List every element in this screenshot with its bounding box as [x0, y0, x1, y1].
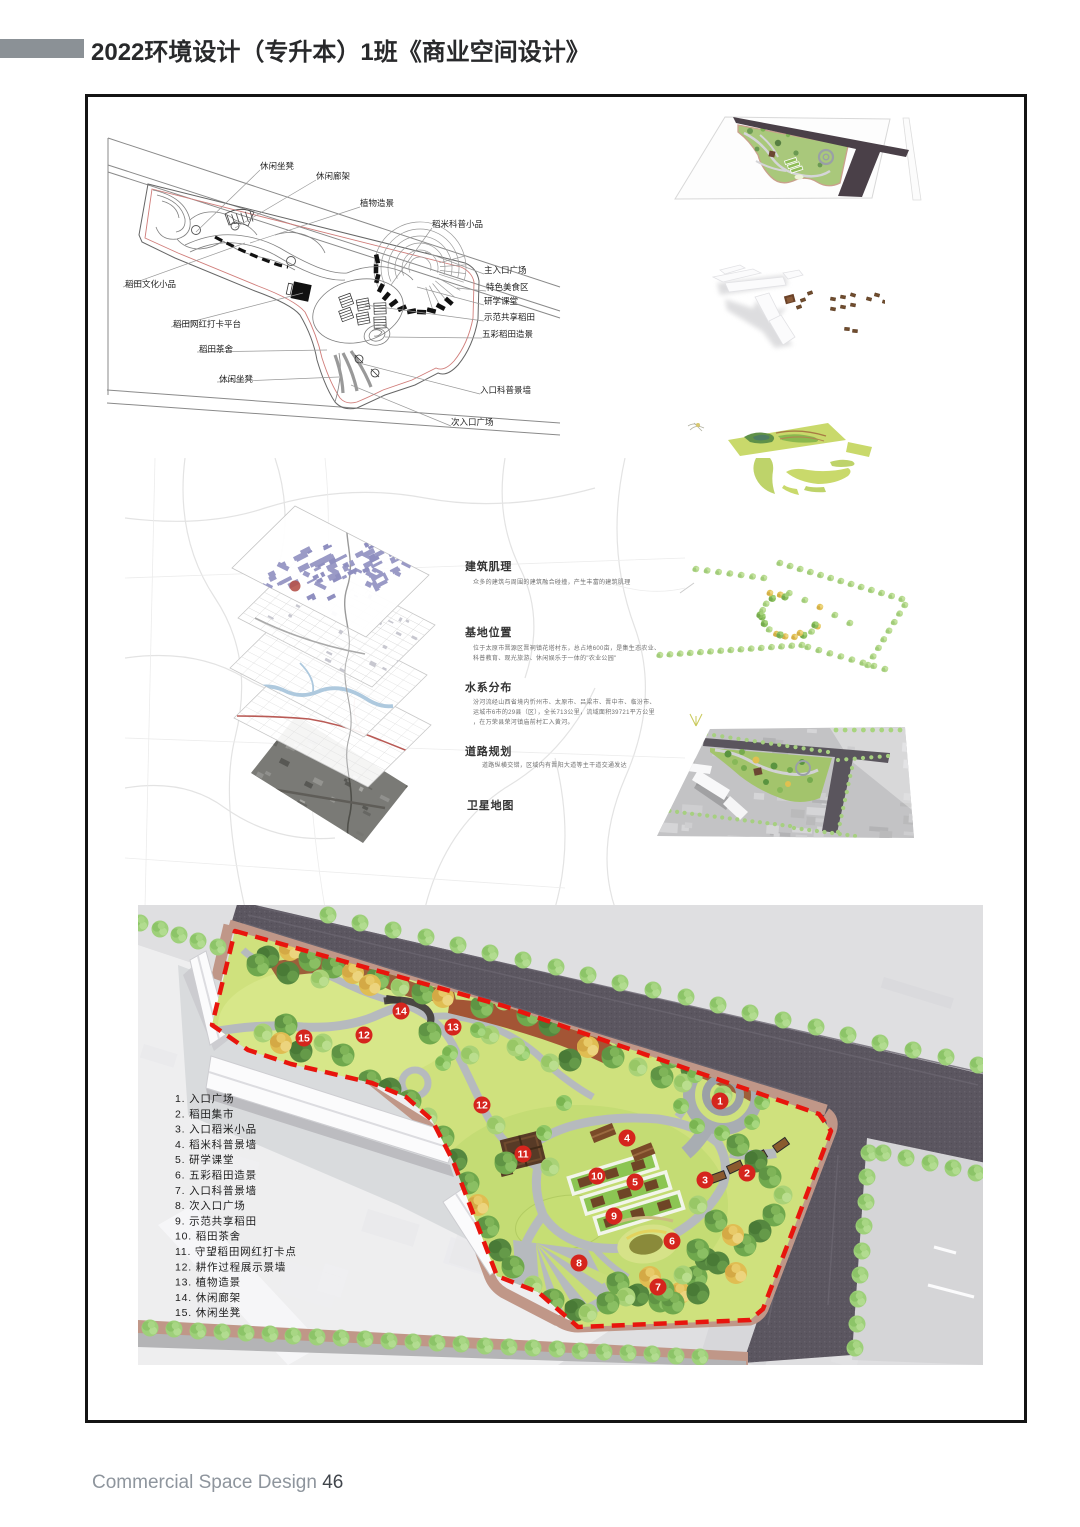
svg-text:7: 7 — [655, 1282, 661, 1294]
svg-text:4: 4 — [624, 1133, 630, 1145]
svg-text:休闲坐凳: 休闲坐凳 — [260, 161, 295, 171]
svg-text:五彩稻田造景: 五彩稻田造景 — [482, 329, 533, 339]
svg-text:11: 11 — [517, 1149, 528, 1161]
svg-text:8: 8 — [576, 1258, 582, 1270]
svg-text:9: 9 — [611, 1211, 617, 1223]
svg-text:3: 3 — [702, 1175, 708, 1187]
svg-text:休闲坐凳: 休闲坐凳 — [219, 374, 254, 384]
svg-text:研学课堂: 研学课堂 — [484, 296, 518, 306]
svg-text:4. 稻米科普景墙: 4. 稻米科普景墙 — [175, 1138, 257, 1151]
svg-text:稻田文化小品: 稻田文化小品 — [125, 279, 176, 289]
svg-text:11. 守望稻田网红打卡点: 11. 守望稻田网红打卡点 — [175, 1245, 297, 1258]
svg-text:2: 2 — [744, 1168, 750, 1180]
svg-text:植物造景: 植物造景 — [360, 198, 394, 208]
svg-text:15. 休闲坐凳: 15. 休闲坐凳 — [175, 1306, 241, 1319]
svg-text:3. 入口稻米小品: 3. 入口稻米小品 — [175, 1123, 257, 1136]
svg-text:稻田网红打卡平台: 稻田网红打卡平台 — [173, 319, 241, 329]
svg-text:示范共享稻田: 示范共享稻田 — [484, 312, 535, 322]
svg-text:休闲廊架: 休闲廊架 — [316, 171, 351, 181]
svg-text:12: 12 — [476, 1100, 488, 1112]
svg-text:主入口广场: 主入口广场 — [484, 265, 527, 275]
svg-text:10: 10 — [591, 1171, 603, 1183]
svg-text:14: 14 — [395, 1006, 407, 1018]
svg-text:5. 研学课堂: 5. 研学课堂 — [175, 1153, 234, 1166]
svg-text:6. 五彩稻田造景: 6. 五彩稻田造景 — [175, 1169, 257, 1182]
svg-text:1. 入口广场: 1. 入口广场 — [175, 1092, 234, 1105]
svg-text:10. 稻田茶舍: 10. 稻田茶舍 — [175, 1230, 241, 1243]
svg-text:6: 6 — [669, 1236, 675, 1248]
svg-text:入口科普景墙: 入口科普景墙 — [480, 385, 532, 395]
svg-text:12. 耕作过程展示景墙: 12. 耕作过程展示景墙 — [175, 1260, 286, 1273]
svg-text:15: 15 — [298, 1033, 310, 1045]
svg-text:稻米科普小品: 稻米科普小品 — [432, 219, 483, 229]
svg-text:2. 稻田集市: 2. 稻田集市 — [175, 1107, 234, 1120]
svg-text:14. 休闲廊架: 14. 休闲廊架 — [175, 1291, 241, 1304]
svg-text:7. 入口科普景墙: 7. 入口科普景墙 — [175, 1184, 257, 1197]
svg-text:9. 示范共享稻田: 9. 示范共享稻田 — [175, 1214, 257, 1227]
svg-text:次入口广场: 次入口广场 — [451, 417, 494, 427]
svg-text:8. 次入口广场: 8. 次入口广场 — [175, 1199, 246, 1212]
svg-text:1: 1 — [717, 1096, 723, 1108]
svg-text:特色美食区: 特色美食区 — [486, 282, 529, 292]
svg-text:5: 5 — [632, 1177, 638, 1189]
svg-text:稻田茶舍: 稻田茶舍 — [199, 344, 234, 354]
svg-text:12: 12 — [358, 1030, 370, 1042]
svg-text:13: 13 — [447, 1022, 459, 1034]
svg-text:13. 植物造景: 13. 植物造景 — [175, 1276, 241, 1289]
